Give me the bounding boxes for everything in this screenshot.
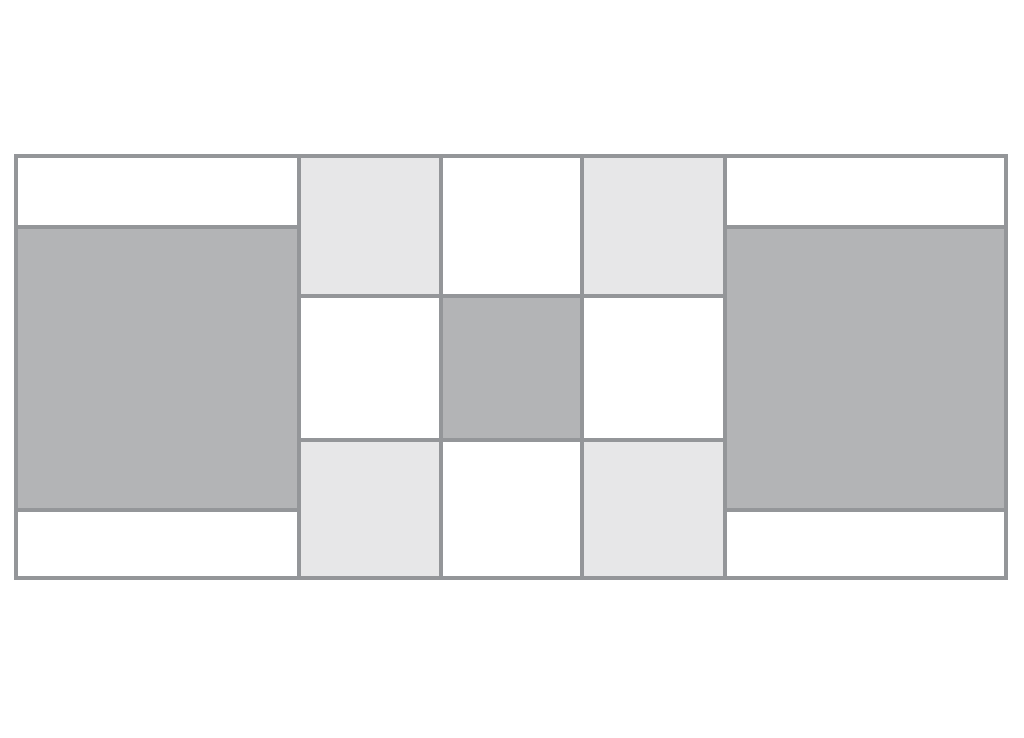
tile-left-block bbox=[18, 229, 297, 508]
tile-right-block bbox=[727, 229, 1004, 508]
tile-grid-r2c3 bbox=[584, 298, 723, 438]
pattern-figure bbox=[14, 154, 1008, 580]
page-background bbox=[0, 0, 1024, 738]
tile-grid-r1c1 bbox=[301, 158, 439, 294]
tile-left-top-strip bbox=[18, 158, 297, 225]
tile-left-bottom-strip bbox=[18, 512, 297, 576]
tile-right-bottom-strip bbox=[727, 512, 1004, 576]
tile-grid-r2c1 bbox=[301, 298, 439, 438]
tile-grid-r2c2 bbox=[443, 298, 580, 438]
tile-grid-r1c2 bbox=[443, 158, 580, 294]
tile-right-top-strip bbox=[727, 158, 1004, 225]
tile-grid-r3c1 bbox=[301, 442, 439, 576]
tile-grid-r3c3 bbox=[584, 442, 723, 576]
tile-grid-r1c3 bbox=[584, 158, 723, 294]
tile-grid-r3c2 bbox=[443, 442, 580, 576]
